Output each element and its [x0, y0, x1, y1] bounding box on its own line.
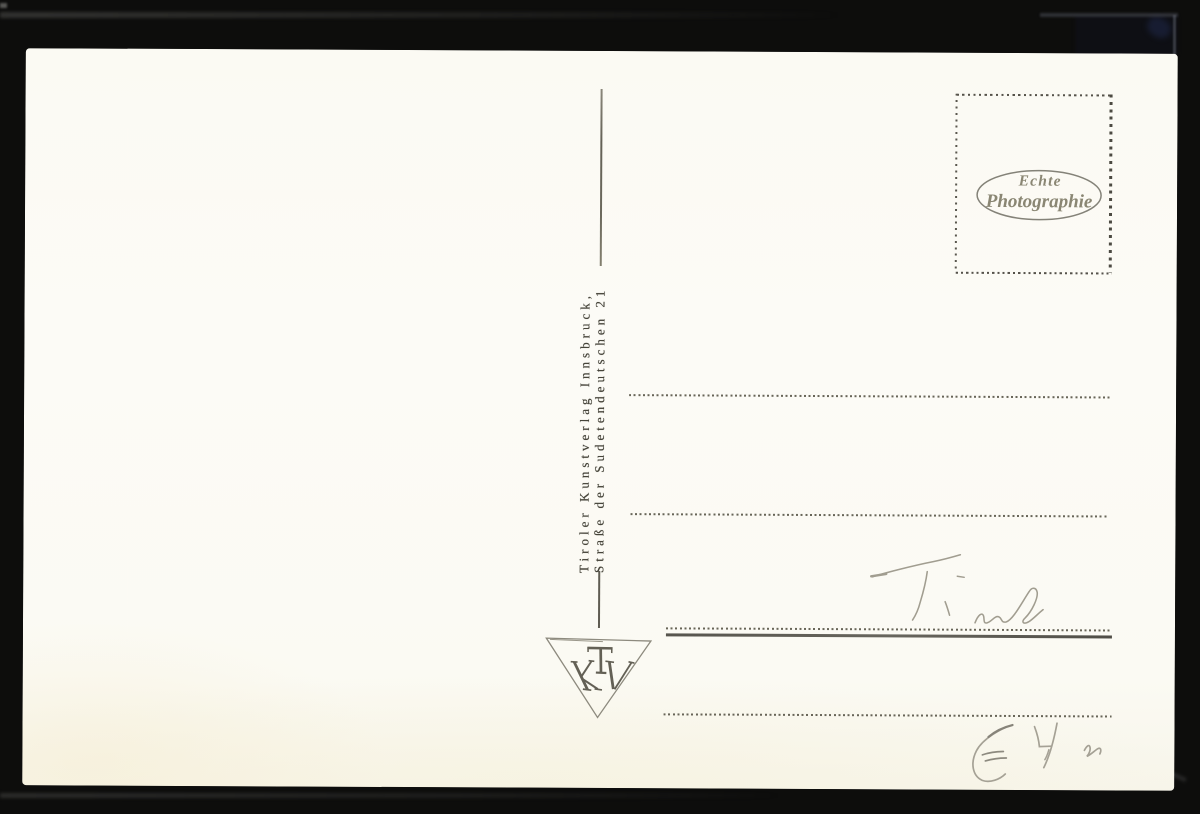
- svg-text:Echte: Echte: [1018, 173, 1062, 190]
- svg-text:Photographie: Photographie: [985, 191, 1093, 213]
